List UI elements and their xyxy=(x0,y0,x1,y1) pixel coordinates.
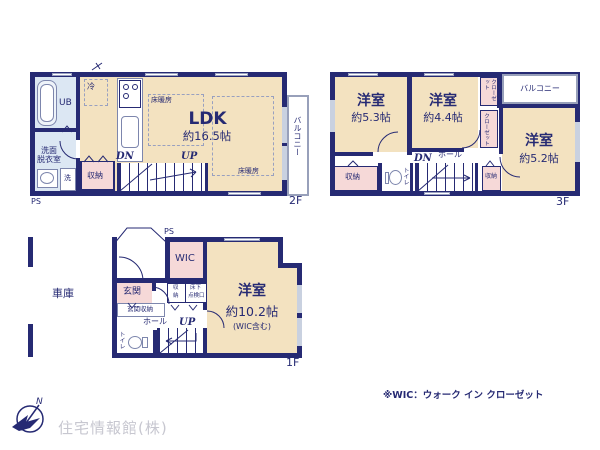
window xyxy=(224,238,260,241)
ldk-name: LDK xyxy=(180,110,235,130)
wall xyxy=(112,237,117,358)
bedroom-note: (WIC含む) xyxy=(224,322,280,331)
compass-icon: N xyxy=(12,397,43,432)
room-b-size: 約4.4帖 xyxy=(409,112,477,125)
floor-label-2f: 2F xyxy=(289,195,302,208)
window xyxy=(297,318,302,346)
floorplan-canvas: バルコニー UB 洗 洗面 脱衣室 冷 床暖房 床暖房 LDK 約16.5帖 収… xyxy=(0,0,600,450)
wall xyxy=(203,328,207,353)
company-name: 住宅情報館(株) xyxy=(58,420,168,437)
window xyxy=(282,107,287,143)
closet-b-label: クローゼット xyxy=(482,113,489,146)
wall xyxy=(30,128,76,132)
storage-w-label: 収納 xyxy=(345,173,360,182)
stove-burner xyxy=(123,93,129,99)
bedroom-name: 洋室 xyxy=(222,283,282,299)
ldk-size: 約16.5帖 xyxy=(172,130,242,143)
folding-door-mark xyxy=(189,305,197,310)
stove-burner xyxy=(132,84,138,90)
toilet-3f-label: トイレ xyxy=(402,167,408,191)
wall xyxy=(335,152,373,156)
hall-3f-label: ホール xyxy=(438,150,462,159)
floor-label-1f: 1F xyxy=(286,357,299,370)
wall xyxy=(30,72,35,196)
window xyxy=(330,100,335,132)
floor-heating-label: 床暖房 xyxy=(151,96,172,104)
compass-n-label: N xyxy=(36,397,43,407)
toilet-icon xyxy=(389,170,402,185)
folding-door-mark xyxy=(171,305,179,310)
ps-label-1f: PS xyxy=(164,227,174,236)
room-c-size: 約5.2帖 xyxy=(507,153,571,166)
room-c-3f xyxy=(502,108,575,191)
window xyxy=(228,192,261,195)
storage-e-label: 収納 xyxy=(485,174,497,181)
window xyxy=(52,73,72,76)
balcony-2f-label: バルコニー xyxy=(293,116,301,178)
window xyxy=(424,73,454,76)
balcony-3f-label: バルコニー xyxy=(510,84,570,93)
stairs-2f xyxy=(117,163,208,191)
wall xyxy=(112,353,302,358)
washroom-label-2: 脱衣室 xyxy=(37,155,61,164)
wic-note: ※WIC：ウォーク イン クローゼット xyxy=(383,391,543,402)
wall xyxy=(76,77,80,140)
linework-overlay: N xyxy=(0,0,600,450)
laundry-label: 洗 xyxy=(64,174,71,182)
entrance-label: 玄関 xyxy=(123,287,141,297)
wall xyxy=(410,163,413,191)
wall xyxy=(76,158,80,191)
wall xyxy=(203,242,207,278)
floor-label-3f: 3F xyxy=(556,196,569,209)
bedroom-size: 約10.2帖 xyxy=(215,305,289,319)
window xyxy=(575,122,580,162)
stove-burner xyxy=(123,84,129,90)
window xyxy=(145,73,178,76)
window xyxy=(424,192,450,195)
garage-wall xyxy=(28,237,33,267)
bathtub-icon xyxy=(40,84,54,122)
wall xyxy=(152,283,156,291)
floor-heating-label: 床暖房 xyxy=(238,167,259,175)
window xyxy=(297,285,302,313)
garage-label: 車庫 xyxy=(52,288,74,301)
porch-outline xyxy=(114,228,166,244)
stairs-dn-label: DN xyxy=(116,151,134,163)
storage-cell-label-2: 納 xyxy=(173,293,179,299)
washbasin-icon xyxy=(40,172,54,184)
floor-hatch-label-2: 点検口 xyxy=(188,293,205,299)
closet-a-label: クローゼット xyxy=(482,79,496,105)
fridge-label: 冷 xyxy=(87,82,95,91)
toilet-icon xyxy=(142,337,148,348)
window xyxy=(215,73,248,76)
kitchen-sink-icon xyxy=(121,116,139,148)
toilet-1f-label: トイレ xyxy=(118,331,124,355)
window xyxy=(348,73,378,76)
stairs-up-label: UP xyxy=(181,151,197,163)
storage-2f-label: 収納 xyxy=(87,171,103,180)
window xyxy=(282,146,287,180)
room-a-name: 洋室 xyxy=(340,93,402,109)
room-b-name: 洋室 xyxy=(412,93,474,109)
wic-label: WIC xyxy=(175,253,195,265)
floor-hatch-label-1: 床下 xyxy=(190,285,201,291)
hall-1f-label: ホール xyxy=(143,317,167,326)
stairs-1f xyxy=(157,328,203,353)
stairs-dn-3f: DN xyxy=(414,153,432,165)
wall xyxy=(330,72,335,196)
room-c-name: 洋室 xyxy=(510,133,568,149)
ub-label: UB xyxy=(59,98,72,108)
ps-label-2f: PS xyxy=(31,197,41,206)
wall xyxy=(499,108,503,154)
stairs-up-1f: UP xyxy=(179,317,195,329)
garage-wall xyxy=(28,324,33,357)
wall xyxy=(165,237,170,283)
storage-cell-label-1: 収 xyxy=(173,285,179,291)
entrance-storage-label: 玄関収納 xyxy=(127,306,153,313)
stairs-3f xyxy=(415,163,478,191)
washroom-label-1: 洗面 xyxy=(41,146,57,155)
wall xyxy=(330,191,580,196)
vent-tick xyxy=(92,63,102,70)
room-a-size: 約5.3帖 xyxy=(337,112,405,125)
toilet-icon xyxy=(128,336,142,349)
